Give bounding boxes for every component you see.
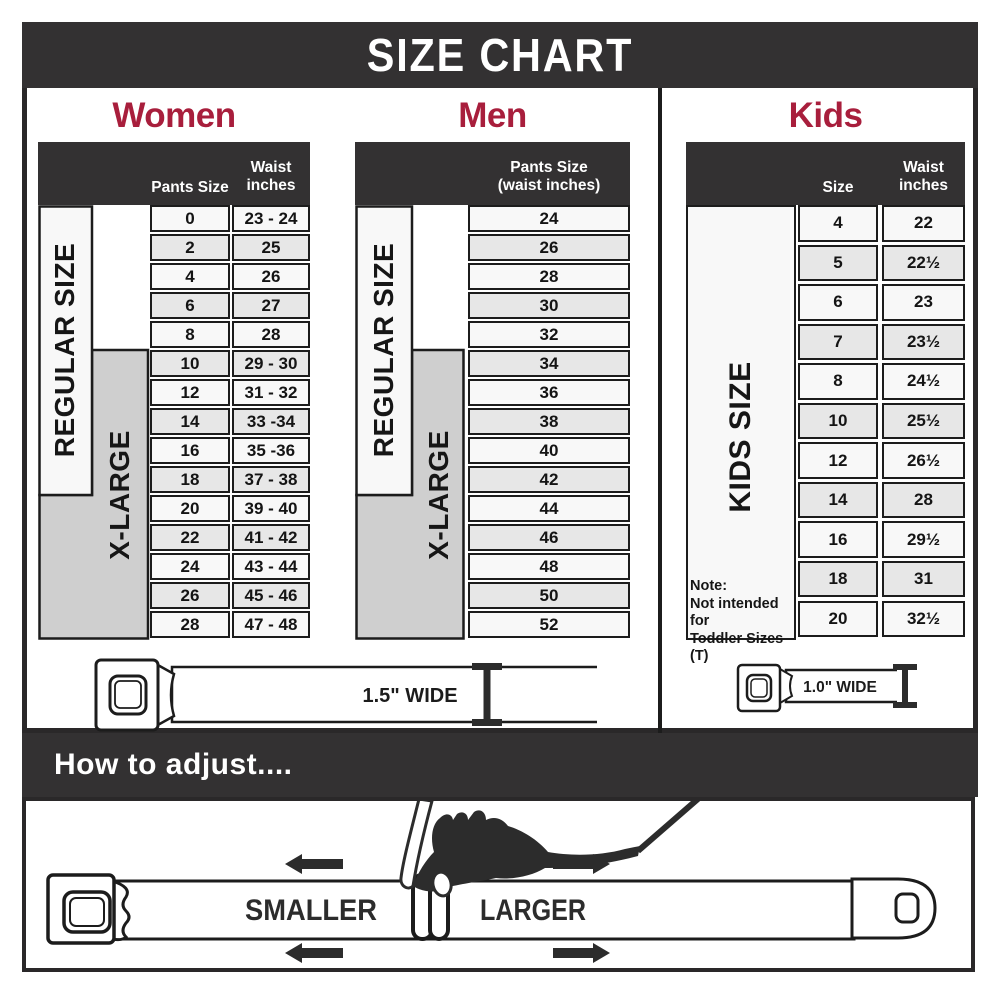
size-cell: 38 (468, 408, 630, 435)
waist-cell: 32½ (882, 601, 965, 638)
size-cell: 12 (798, 442, 878, 479)
waist-cell: 31 - 32 (232, 379, 310, 406)
waist-cell: 33 -34 (232, 408, 310, 435)
kids-size-table: Size Waist inches KIDS SIZE Note: Not in… (686, 142, 965, 640)
size-cell: 8 (798, 363, 878, 400)
waist-cell: 23 - 24 (232, 205, 310, 232)
waist-cell: 41 - 42 (232, 524, 310, 551)
size-cell: 18 (150, 466, 230, 493)
kids-rows: 422522½623723½824½1025½1226½14281629½183… (686, 142, 965, 640)
size-cell: 7 (798, 324, 878, 361)
belt-tip-hole (896, 894, 918, 922)
waist-cell: 29 - 30 (232, 350, 310, 377)
waist-cell: 26½ (882, 442, 965, 479)
adult-belt-illustration: 1.5" WIDE (60, 650, 620, 740)
waist-cell: 43 - 44 (232, 553, 310, 580)
size-cell: 10 (798, 403, 878, 440)
belt-tip (852, 879, 935, 938)
men-rows: 242628303234363840424446485052 (355, 142, 630, 640)
adjustment-illustration: SMALLER LARGER (26, 801, 971, 968)
size-cell: 28 (468, 263, 630, 290)
waist-cell: 22 (882, 205, 965, 242)
waist-cell: 28 (232, 321, 310, 348)
kids-belt-illustration: 1.0" WIDE (690, 650, 970, 740)
waist-cell: 23½ (882, 324, 965, 361)
size-chart-infographic: SIZE CHART Women Men Kids Pants Size Wai… (0, 0, 1000, 1000)
page-title: SIZE CHART (367, 28, 633, 82)
waist-cell: 25½ (882, 403, 965, 440)
size-cell: 20 (150, 495, 230, 522)
kids-heading: Kids (686, 94, 965, 138)
waist-cell: 26 (232, 263, 310, 290)
size-cell: 32 (468, 321, 630, 348)
size-cell: 24 (468, 205, 630, 232)
adjustment-illustration-panel: SMALLER LARGER (22, 797, 975, 972)
size-cell: 6 (798, 284, 878, 321)
women-heading: Women (38, 94, 310, 138)
waist-cell: 37 - 38 (232, 466, 310, 493)
size-cell: 26 (150, 582, 230, 609)
adult-width-label: 1.5" WIDE (362, 685, 457, 707)
women-rows: 023 - 242254266278281029 - 301231 - 3214… (38, 142, 310, 640)
size-cell: 34 (468, 350, 630, 377)
size-cell: 14 (150, 408, 230, 435)
size-cell: 50 (468, 582, 630, 609)
waist-cell: 22½ (882, 245, 965, 282)
men-size-table: Pants Size (waist inches) REGULAR SIZE X… (355, 142, 630, 640)
size-cell: 4 (150, 263, 230, 290)
size-cell: 44 (468, 495, 630, 522)
size-cell: 40 (468, 437, 630, 464)
how-to-adjust-heading: How to adjust.... (22, 748, 293, 782)
size-cell: 42 (468, 466, 630, 493)
how-to-adjust-band: How to adjust.... (22, 733, 978, 797)
waist-cell: 23 (882, 284, 965, 321)
waist-cell: 35 -36 (232, 437, 310, 464)
waist-cell: 27 (232, 292, 310, 319)
men-heading: Men (355, 94, 630, 138)
size-cell: 10 (150, 350, 230, 377)
size-cell: 16 (798, 521, 878, 558)
title-band: SIZE CHART (22, 22, 978, 88)
waist-cell: 25 (232, 234, 310, 261)
size-cell: 16 (150, 437, 230, 464)
waist-cell: 29½ (882, 521, 965, 558)
kids-buckle-latch (780, 669, 792, 703)
size-cell: 4 (798, 205, 878, 242)
kids-section-divider (658, 88, 662, 733)
waist-cell: 31 (882, 561, 965, 598)
pulled-strap (638, 801, 699, 851)
arrow-left-bottom-icon (285, 943, 343, 963)
size-cell: 18 (798, 561, 878, 598)
size-cell: 8 (150, 321, 230, 348)
women-size-table: Pants Size Waist inches REGULAR SIZE X-L… (38, 142, 310, 640)
size-cell: 5 (798, 245, 878, 282)
waist-cell: 24½ (882, 363, 965, 400)
size-cell: 6 (150, 292, 230, 319)
size-cell: 46 (468, 524, 630, 551)
kids-width-label: 1.0" WIDE (803, 679, 877, 696)
size-cell: 14 (798, 482, 878, 519)
size-cell: 12 (150, 379, 230, 406)
size-cell: 22 (150, 524, 230, 551)
arrow-left-top-icon (285, 854, 343, 874)
size-cell: 52 (468, 611, 630, 638)
waist-cell: 39 - 40 (232, 495, 310, 522)
size-cell: 2 (150, 234, 230, 261)
smaller-label: SMALLER (245, 894, 377, 927)
size-cell: 20 (798, 601, 878, 638)
larger-label: LARGER (480, 894, 586, 927)
size-cell: 24 (150, 553, 230, 580)
size-cell: 0 (150, 205, 230, 232)
size-cell: 28 (150, 611, 230, 638)
waist-cell: 45 - 46 (232, 582, 310, 609)
size-cell: 30 (468, 292, 630, 319)
size-cell: 48 (468, 553, 630, 580)
size-cell: 36 (468, 379, 630, 406)
waist-cell: 28 (882, 482, 965, 519)
arrow-right-bottom-icon (553, 943, 610, 963)
waist-cell: 47 - 48 (232, 611, 310, 638)
size-cell: 26 (468, 234, 630, 261)
